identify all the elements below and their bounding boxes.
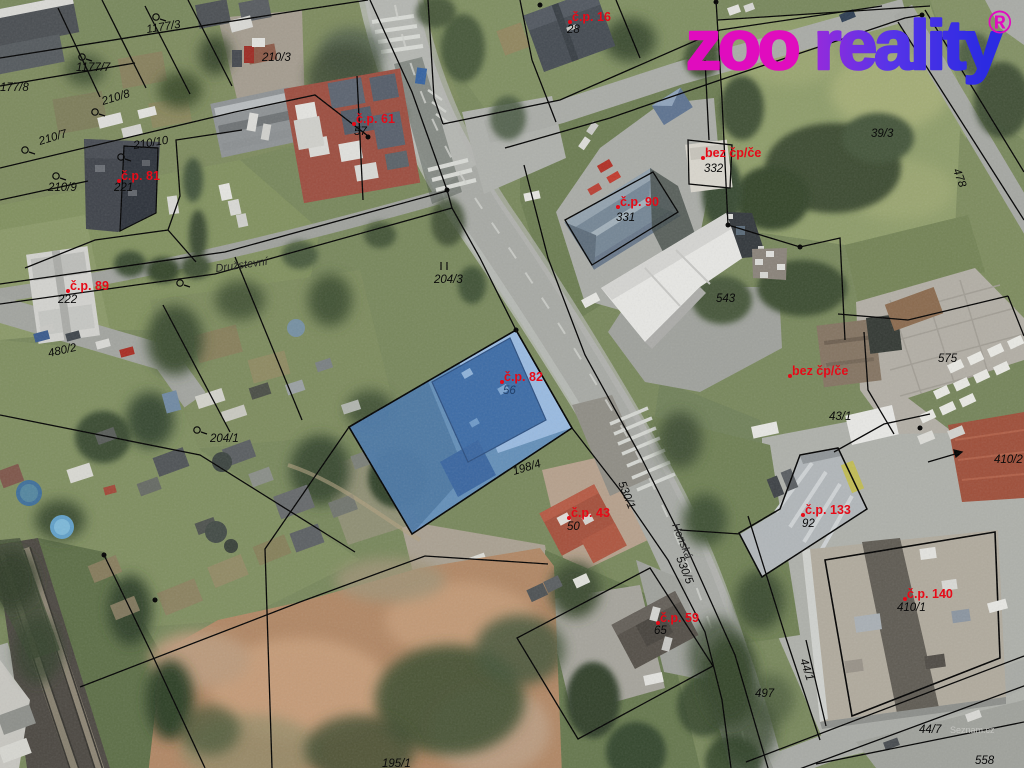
svg-text:Seznam.cz: Seznam.cz — [950, 725, 995, 735]
svg-text:zoo reality: zoo reality — [686, 6, 1002, 84]
svg-text:®: ® — [988, 4, 1012, 40]
